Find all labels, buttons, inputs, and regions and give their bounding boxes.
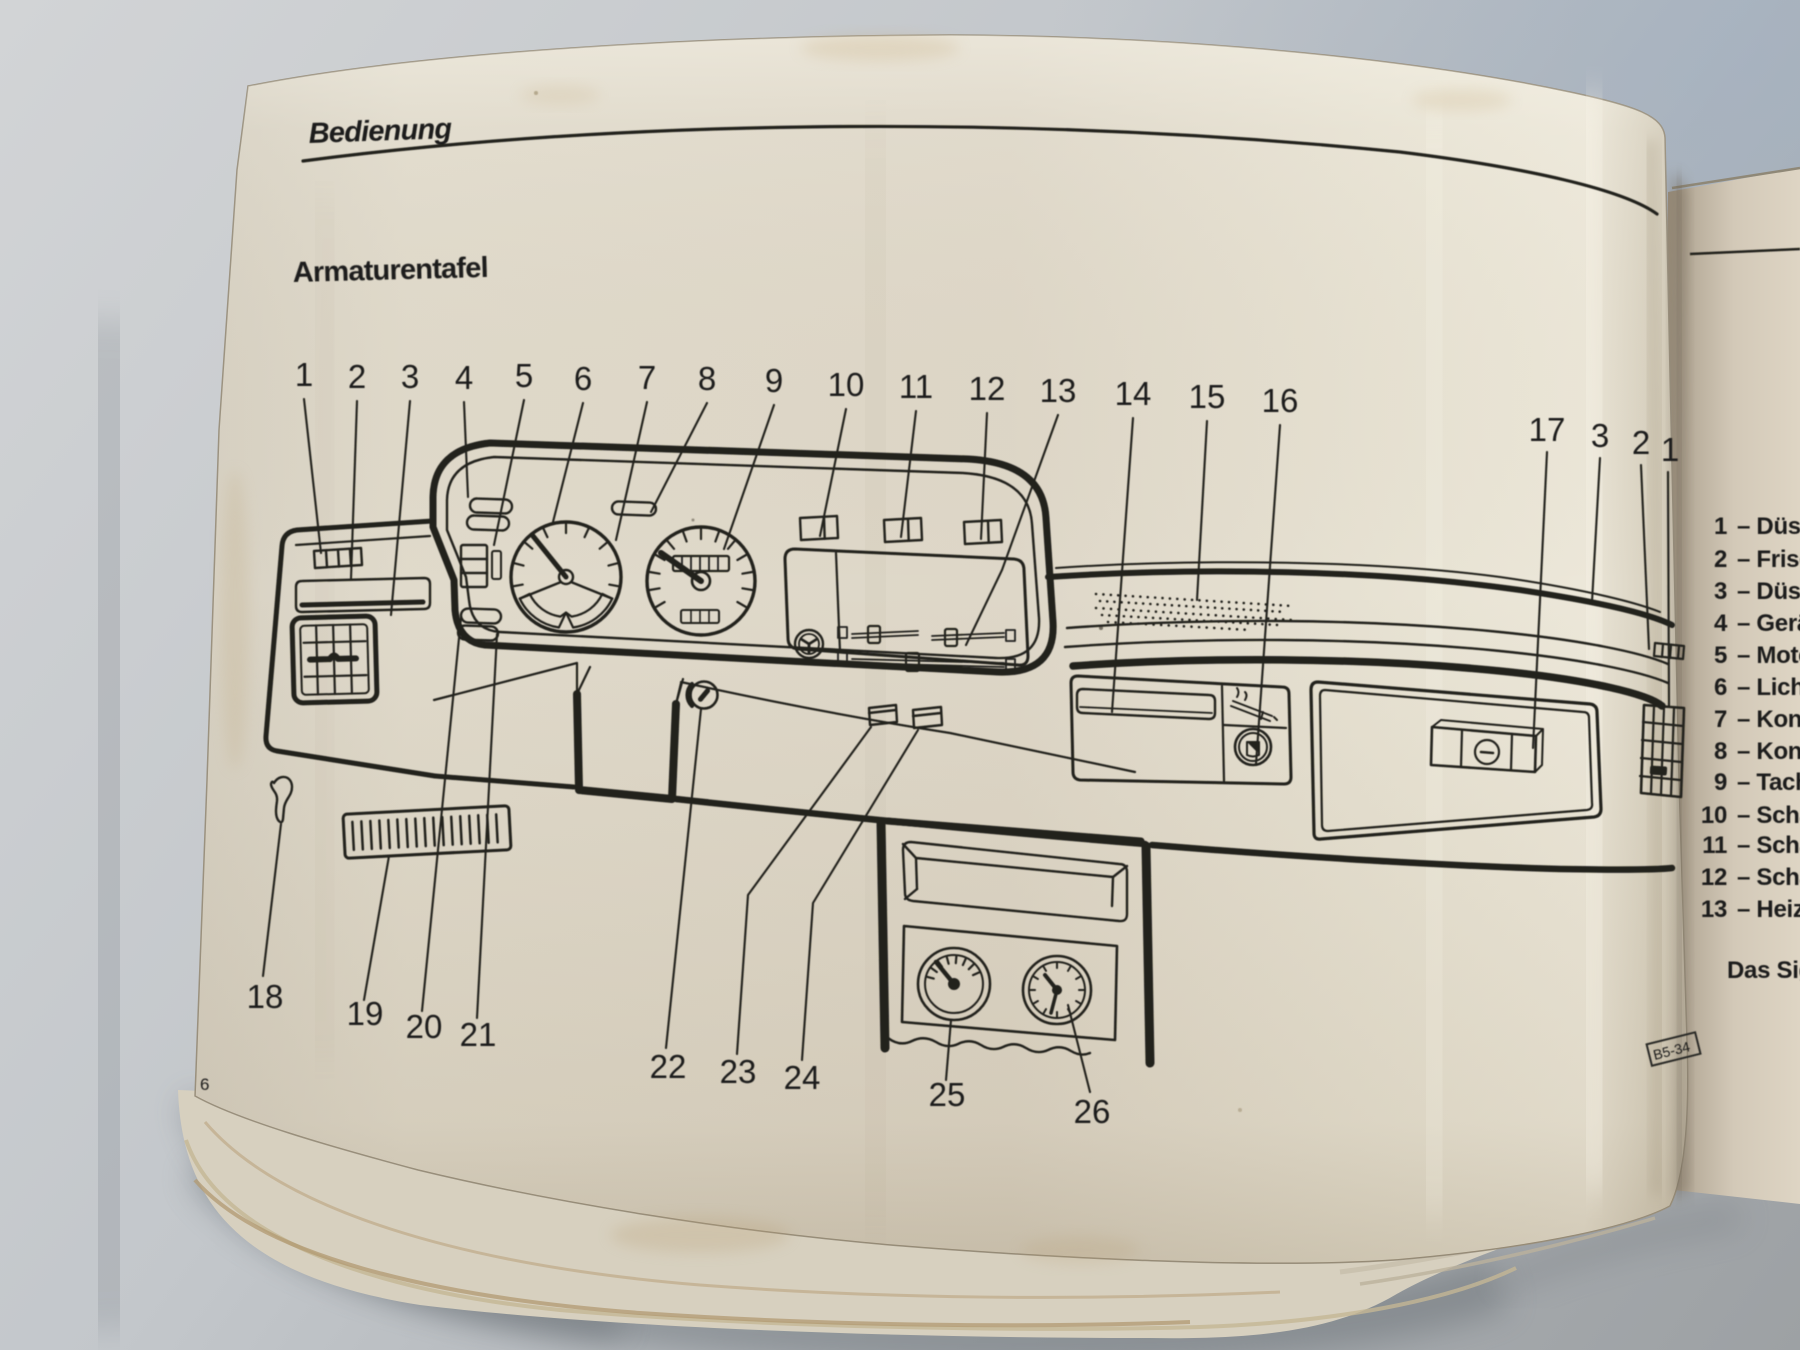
svg-text:4: 4 bbox=[1714, 610, 1728, 637]
svg-text:– Kont: – Kont bbox=[1737, 738, 1800, 765]
svg-text:4: 4 bbox=[455, 359, 473, 396]
svg-text:– Scha: – Scha bbox=[1737, 864, 1800, 891]
svg-text:6: 6 bbox=[574, 360, 592, 397]
svg-text:Das Sig: Das Sig bbox=[1727, 957, 1800, 984]
svg-text:2: 2 bbox=[1632, 424, 1650, 461]
svg-text:Bedienung: Bedienung bbox=[308, 113, 453, 150]
svg-text:10: 10 bbox=[1701, 802, 1727, 829]
svg-text:1: 1 bbox=[1714, 513, 1727, 540]
svg-text:26: 26 bbox=[1074, 1093, 1111, 1130]
svg-text:18: 18 bbox=[247, 978, 284, 1015]
svg-text:6: 6 bbox=[1714, 674, 1727, 701]
svg-text:25: 25 bbox=[929, 1076, 966, 1113]
svg-text:11: 11 bbox=[1702, 832, 1727, 859]
svg-text:22: 22 bbox=[650, 1048, 687, 1085]
svg-text:– Düse: – Düse bbox=[1737, 578, 1800, 605]
svg-text:23: 23 bbox=[720, 1053, 757, 1090]
svg-text:19: 19 bbox=[347, 995, 384, 1032]
svg-text:14: 14 bbox=[1115, 375, 1152, 412]
svg-text:17: 17 bbox=[1529, 411, 1566, 448]
svg-text:– Scha: – Scha bbox=[1737, 802, 1800, 829]
svg-text:– Moto: – Moto bbox=[1737, 642, 1800, 669]
svg-text:12: 12 bbox=[1701, 864, 1727, 891]
svg-text:13: 13 bbox=[1040, 372, 1077, 409]
svg-text:3: 3 bbox=[1591, 417, 1609, 454]
svg-text:1: 1 bbox=[295, 356, 313, 393]
svg-text:11: 11 bbox=[899, 368, 933, 405]
svg-text:1: 1 bbox=[1661, 431, 1679, 468]
svg-text:3: 3 bbox=[1714, 578, 1727, 605]
svg-text:12: 12 bbox=[969, 370, 1006, 407]
svg-text:8: 8 bbox=[698, 360, 716, 397]
svg-text:5: 5 bbox=[1714, 642, 1727, 669]
svg-text:10: 10 bbox=[828, 366, 865, 403]
svg-text:– Licht: – Licht bbox=[1737, 674, 1800, 701]
svg-text:2: 2 bbox=[348, 358, 366, 395]
svg-text:6: 6 bbox=[200, 1075, 209, 1094]
svg-text:9: 9 bbox=[1714, 769, 1727, 796]
svg-text:Armaturentafel: Armaturentafel bbox=[292, 252, 488, 289]
svg-text:21: 21 bbox=[460, 1016, 497, 1053]
svg-text:16: 16 bbox=[1262, 382, 1299, 419]
svg-text:– Scha: – Scha bbox=[1737, 832, 1800, 859]
svg-text:– Düse: – Düse bbox=[1737, 513, 1800, 540]
svg-text:13: 13 bbox=[1701, 896, 1727, 923]
svg-text:5: 5 bbox=[515, 357, 533, 394]
svg-text:7: 7 bbox=[638, 359, 656, 396]
svg-text:– Gerä: – Gerä bbox=[1737, 610, 1800, 637]
svg-text:– Heiz: – Heiz bbox=[1737, 896, 1800, 923]
svg-text:– Tach: – Tach bbox=[1737, 769, 1800, 796]
svg-text:8: 8 bbox=[1714, 738, 1727, 765]
svg-text:7: 7 bbox=[1714, 706, 1727, 733]
svg-text:20: 20 bbox=[406, 1008, 443, 1045]
svg-text:– Frisc: – Frisc bbox=[1737, 546, 1800, 573]
svg-text:9: 9 bbox=[765, 362, 783, 399]
svg-text:2: 2 bbox=[1714, 546, 1727, 573]
svg-text:15: 15 bbox=[1189, 378, 1226, 415]
svg-text:3: 3 bbox=[401, 358, 419, 395]
svg-text:– Kont: – Kont bbox=[1737, 706, 1800, 733]
svg-text:24: 24 bbox=[784, 1059, 821, 1096]
